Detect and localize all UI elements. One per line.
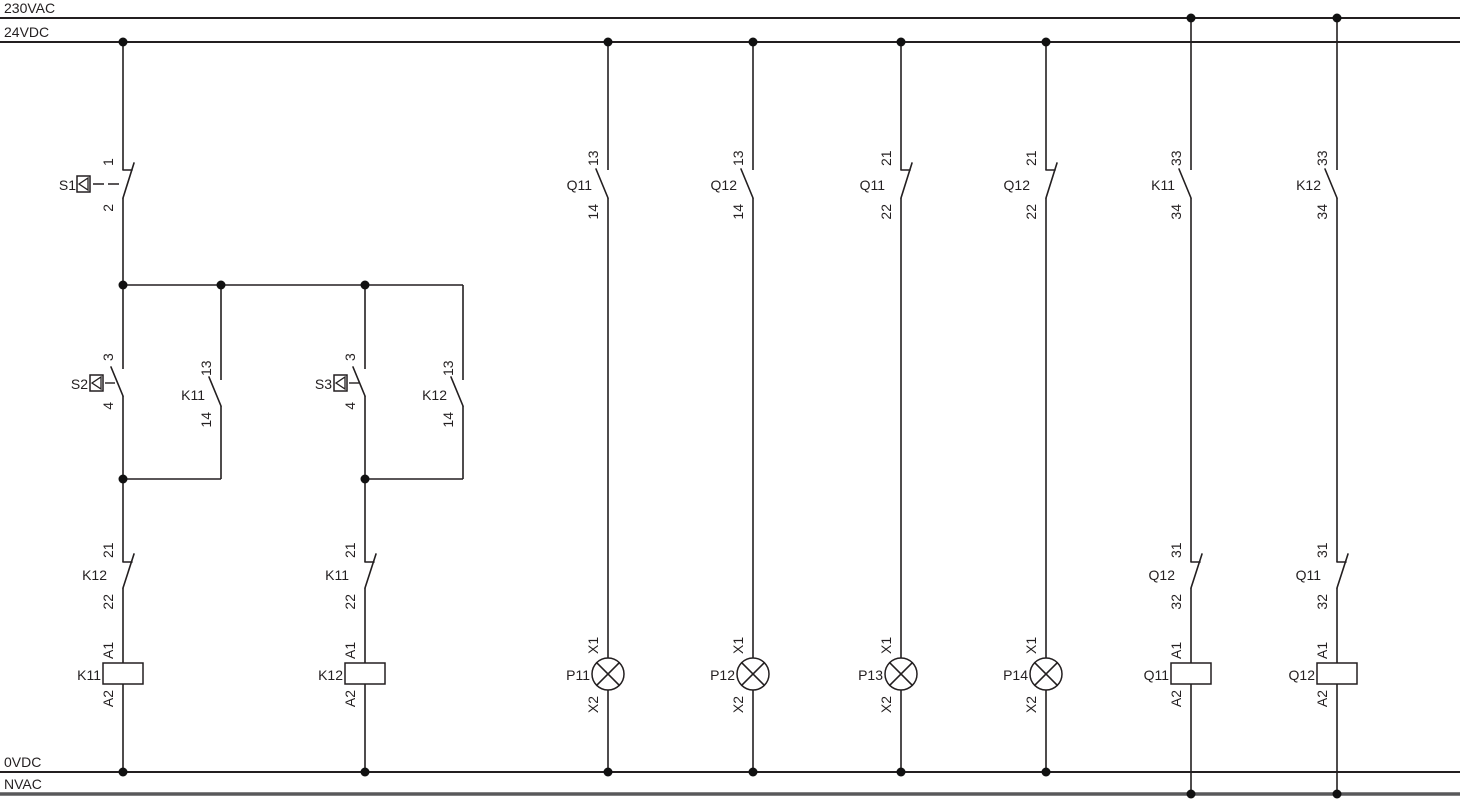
- k12-seal-label: K12: [422, 387, 447, 403]
- s2-label: S2: [71, 376, 88, 392]
- q11-nc21-terminal-bottom: 22: [878, 204, 894, 220]
- k12-nc-terminal-top: 21: [100, 542, 116, 558]
- q12-nc21-terminal-top: 21: [1023, 150, 1039, 166]
- q12-coil-terminal-bottom: A2: [1314, 690, 1330, 707]
- q12-coil-terminal-top: A1: [1314, 642, 1330, 659]
- q12-coil-label: Q12: [1289, 667, 1316, 683]
- s3-label: S3: [315, 376, 332, 392]
- q11-nc31-label: Q11: [1296, 567, 1322, 583]
- q11-coil-box: [1171, 663, 1211, 684]
- contact-k11-nc: K11 21 22: [325, 542, 376, 609]
- k11-seal-label: K11: [181, 387, 205, 403]
- q11-nc31-terminal-bottom: 32: [1314, 594, 1330, 610]
- rail-nvac-label: NVAC: [4, 776, 42, 792]
- p13-terminal-top: X1: [878, 637, 894, 654]
- schematic-page: 230VAC 24VDC 0VDC NVAC: [0, 0, 1460, 800]
- p12-terminal-bottom: X2: [730, 696, 746, 713]
- q12-nc21-terminal-bottom: 22: [1023, 204, 1039, 220]
- k12-coil-label: K12: [318, 667, 343, 683]
- p13-label: P13: [858, 667, 883, 683]
- contact-q12-nc-31: Q12 31 32: [1149, 542, 1202, 609]
- pushbutton-s2-no: S2 3 4: [71, 353, 123, 410]
- q12-nc31-terminal-bottom: 32: [1168, 594, 1184, 610]
- p12-terminal-top: X1: [730, 637, 746, 654]
- k11-seal-terminal-top: 13: [198, 360, 214, 376]
- q12-no13-label: Q12: [711, 177, 738, 193]
- rail-nvac: NVAC: [0, 776, 1460, 794]
- lamp-p13: P13 X1 X2: [858, 637, 917, 713]
- q11-nc31-terminal-top: 31: [1314, 542, 1330, 558]
- k11-nc-terminal-top: 21: [342, 542, 358, 558]
- k11-nc-terminal-bottom: 22: [342, 594, 358, 610]
- q11-no13-terminal-bottom: 14: [585, 204, 601, 220]
- q12-coil-box: [1317, 663, 1357, 684]
- q11-coil-label: Q11: [1144, 667, 1170, 683]
- rail-24vdc-label: 24VDC: [4, 24, 49, 40]
- rail-0vdc-label: 0VDC: [4, 754, 41, 770]
- contact-q11-nc-21: Q11 21 22: [860, 150, 912, 219]
- q12-no13-terminal-top: 13: [730, 150, 746, 166]
- pushbutton-s3-no: S3 3 4: [315, 353, 365, 410]
- s1-terminal-top: 1: [100, 158, 116, 166]
- p14-terminal-bottom: X2: [1023, 696, 1039, 713]
- ladder-diagram: 230VAC 24VDC 0VDC NVAC: [0, 0, 1460, 800]
- k11-seal-terminal-bottom: 14: [198, 412, 214, 428]
- p13-terminal-bottom: X2: [878, 696, 894, 713]
- k12-no33-terminal-bottom: 34: [1314, 204, 1330, 220]
- k11-coil-box: [103, 663, 143, 684]
- q11-coil-terminal-bottom: A2: [1168, 690, 1184, 707]
- q12-nc21-label: Q12: [1004, 177, 1031, 193]
- s2-terminal-bottom: 4: [100, 402, 116, 410]
- contact-k12-no-33: K12 33 34: [1296, 150, 1337, 219]
- contact-q12-nc-21: Q12 21 22: [1004, 150, 1057, 219]
- contact-q11-no-13: Q11 13 14: [567, 150, 608, 219]
- s1-label: S1: [59, 177, 76, 193]
- q11-nc21-label: Q11: [860, 177, 886, 193]
- q12-nc31-label: Q12: [1149, 567, 1176, 583]
- q11-no13-label: Q11: [567, 177, 593, 193]
- p14-terminal-top: X1: [1023, 637, 1039, 654]
- contact-k12-no-seal: K12 13 14: [422, 360, 463, 427]
- k12-no33-label: K12: [1296, 177, 1321, 193]
- p12-label: P12: [710, 667, 735, 683]
- k11-nc-label: K11: [325, 567, 349, 583]
- p11-terminal-bottom: X2: [585, 696, 601, 713]
- rail-230vac: 230VAC: [0, 0, 1460, 18]
- rail-24vdc: 24VDC: [0, 24, 1460, 42]
- k12-coil-terminal-top: A1: [342, 642, 358, 659]
- k11-no33-terminal-bottom: 34: [1168, 204, 1184, 220]
- k12-coil-box: [345, 663, 385, 684]
- rail-0vdc: 0VDC: [0, 754, 1460, 772]
- contact-k12-nc: K12 21 22: [82, 542, 134, 609]
- q12-nc31-terminal-top: 31: [1168, 542, 1184, 558]
- k11-no33-terminal-top: 33: [1168, 150, 1184, 166]
- k12-seal-terminal-bottom: 14: [440, 412, 456, 428]
- contact-q12-no-13: Q12 13 14: [711, 150, 753, 219]
- q11-no13-terminal-top: 13: [585, 150, 601, 166]
- q11-nc21-terminal-top: 21: [878, 150, 894, 166]
- k12-no33-terminal-top: 33: [1314, 150, 1330, 166]
- lamp-p12: P12 X1 X2: [710, 637, 769, 713]
- lamp-p14: P14 X1 X2: [1003, 637, 1062, 713]
- s2-terminal-top: 3: [100, 353, 116, 361]
- k11-coil-label: K11: [77, 667, 101, 683]
- p14-label: P14: [1003, 667, 1028, 683]
- k12-nc-label: K12: [82, 567, 107, 583]
- contact-k11-no-33: K11 33 34: [1151, 150, 1191, 219]
- s3-terminal-top: 3: [342, 353, 358, 361]
- k12-nc-terminal-bottom: 22: [100, 594, 116, 610]
- s1-terminal-bottom: 2: [100, 204, 116, 212]
- k12-seal-terminal-top: 13: [440, 360, 456, 376]
- rail-230vac-label: 230VAC: [4, 0, 55, 16]
- coil-q12: Q12 A1 A2: [1289, 642, 1357, 707]
- coil-k11: K11 A1 A2: [77, 642, 143, 707]
- coil-q11: Q11 A1 A2: [1144, 642, 1211, 707]
- q11-coil-terminal-top: A1: [1168, 642, 1184, 659]
- k11-coil-terminal-top: A1: [100, 642, 116, 659]
- coil-k12: K12 A1 A2: [318, 642, 385, 707]
- p11-label: P11: [566, 667, 590, 683]
- k12-coil-terminal-bottom: A2: [342, 690, 358, 707]
- p11-terminal-top: X1: [585, 637, 601, 654]
- contact-q11-nc-31: Q11 31 32: [1296, 542, 1348, 609]
- contact-k11-no-seal: K11 13 14: [181, 360, 221, 427]
- lamp-p11: P11 X1 X2: [566, 637, 624, 713]
- s3-terminal-bottom: 4: [342, 402, 358, 410]
- k11-no33-label: K11: [1151, 177, 1175, 193]
- k11-coil-terminal-bottom: A2: [100, 690, 116, 707]
- q12-no13-terminal-bottom: 14: [730, 204, 746, 220]
